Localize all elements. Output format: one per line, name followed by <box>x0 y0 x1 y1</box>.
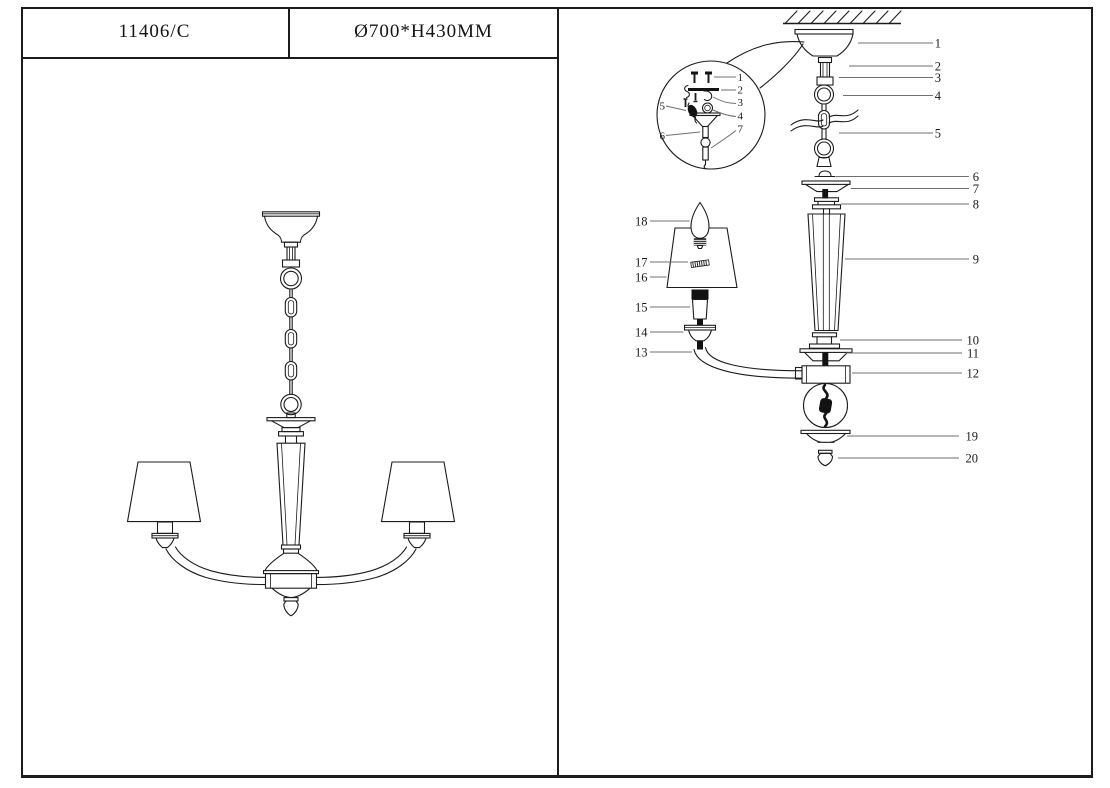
part-label-20: 20 <box>966 452 979 466</box>
leader-lines-right <box>836 43 969 458</box>
canopy-stem <box>283 242 300 267</box>
part-label-12: 12 <box>967 367 980 381</box>
part-label-13: 13 <box>635 346 648 360</box>
part-label-9: 9 <box>973 253 979 267</box>
top-saucer <box>267 418 315 444</box>
leader-lines-left <box>650 221 692 352</box>
part-label-11: 11 <box>967 347 979 361</box>
chain <box>285 289 296 395</box>
shade-ring-clip <box>691 260 710 268</box>
candle-bulb <box>691 203 709 249</box>
glass-column <box>808 214 845 331</box>
right-arm <box>317 522 431 585</box>
inset-label-5: 5 <box>660 101 666 113</box>
bottom-finial <box>284 598 298 616</box>
ceiling-canopy <box>263 212 320 242</box>
part-label-10: 10 <box>967 334 980 348</box>
inset-label-6: 6 <box>660 131 666 143</box>
bottom-finial <box>818 450 833 466</box>
bottom-saucer <box>801 430 850 442</box>
arm-cup <box>685 325 716 349</box>
power-wire <box>791 110 858 125</box>
part-label-4: 4 <box>935 89 942 103</box>
part-label-14: 14 <box>635 326 648 340</box>
part-label-1: 1 <box>935 37 941 51</box>
detail-balloon: 1 2 3 4 5 6 7 <box>657 42 804 169</box>
part-label-17: 17 <box>635 256 648 270</box>
part-label-7: 7 <box>973 182 979 196</box>
exploded-parts-diagram: 1 2 3 4 5 6 7 1 2 <box>559 7 1093 778</box>
part-labels-right: 1 2 3 4 5 6 7 8 9 10 11 12 19 20 <box>935 37 979 466</box>
finial-cap <box>815 171 835 177</box>
part-label-5: 5 <box>935 127 941 141</box>
left-shade <box>128 462 201 522</box>
part-label-3: 3 <box>935 71 941 85</box>
part-label-16: 16 <box>635 271 648 285</box>
hub-box <box>802 366 850 383</box>
lower-ring <box>281 394 301 417</box>
hanging-ring <box>815 85 834 104</box>
canopy-stem <box>817 58 833 86</box>
lamp-arm <box>694 348 802 380</box>
part-label-8: 8 <box>973 198 979 212</box>
part-label-18: 18 <box>635 215 648 229</box>
hanging-ring <box>281 268 302 289</box>
threaded-spool <box>813 189 841 214</box>
lower-spool <box>810 333 840 348</box>
ceiling-hatch <box>783 11 901 24</box>
right-shade <box>382 462 455 522</box>
assembled-chandelier-drawing <box>21 59 557 776</box>
left-arm <box>152 522 266 585</box>
inset-label-7: 7 <box>738 124 744 136</box>
part-label-19: 19 <box>966 430 979 444</box>
wire-detail-circle <box>804 384 848 428</box>
inset-label-1: 1 <box>738 72 744 84</box>
lower-saucer <box>800 349 852 366</box>
chain-and-wire <box>791 104 858 167</box>
canopy <box>795 30 853 57</box>
model-number: 11406/C <box>21 7 288 57</box>
center-hub <box>264 553 319 597</box>
inset-label-3: 3 <box>738 97 744 109</box>
glass-column <box>277 443 305 553</box>
drawing-sheet: 11406/C Ø700*H430MM <box>0 0 1110 788</box>
dimension-spec: Ø700*H430MM <box>290 7 557 57</box>
part-label-15: 15 <box>635 301 648 315</box>
part-labels-left: 18 17 16 15 14 13 <box>635 215 648 360</box>
lamp-socket <box>692 290 709 326</box>
inset-label-4: 4 <box>738 111 744 123</box>
inset-label-2: 2 <box>738 85 744 97</box>
